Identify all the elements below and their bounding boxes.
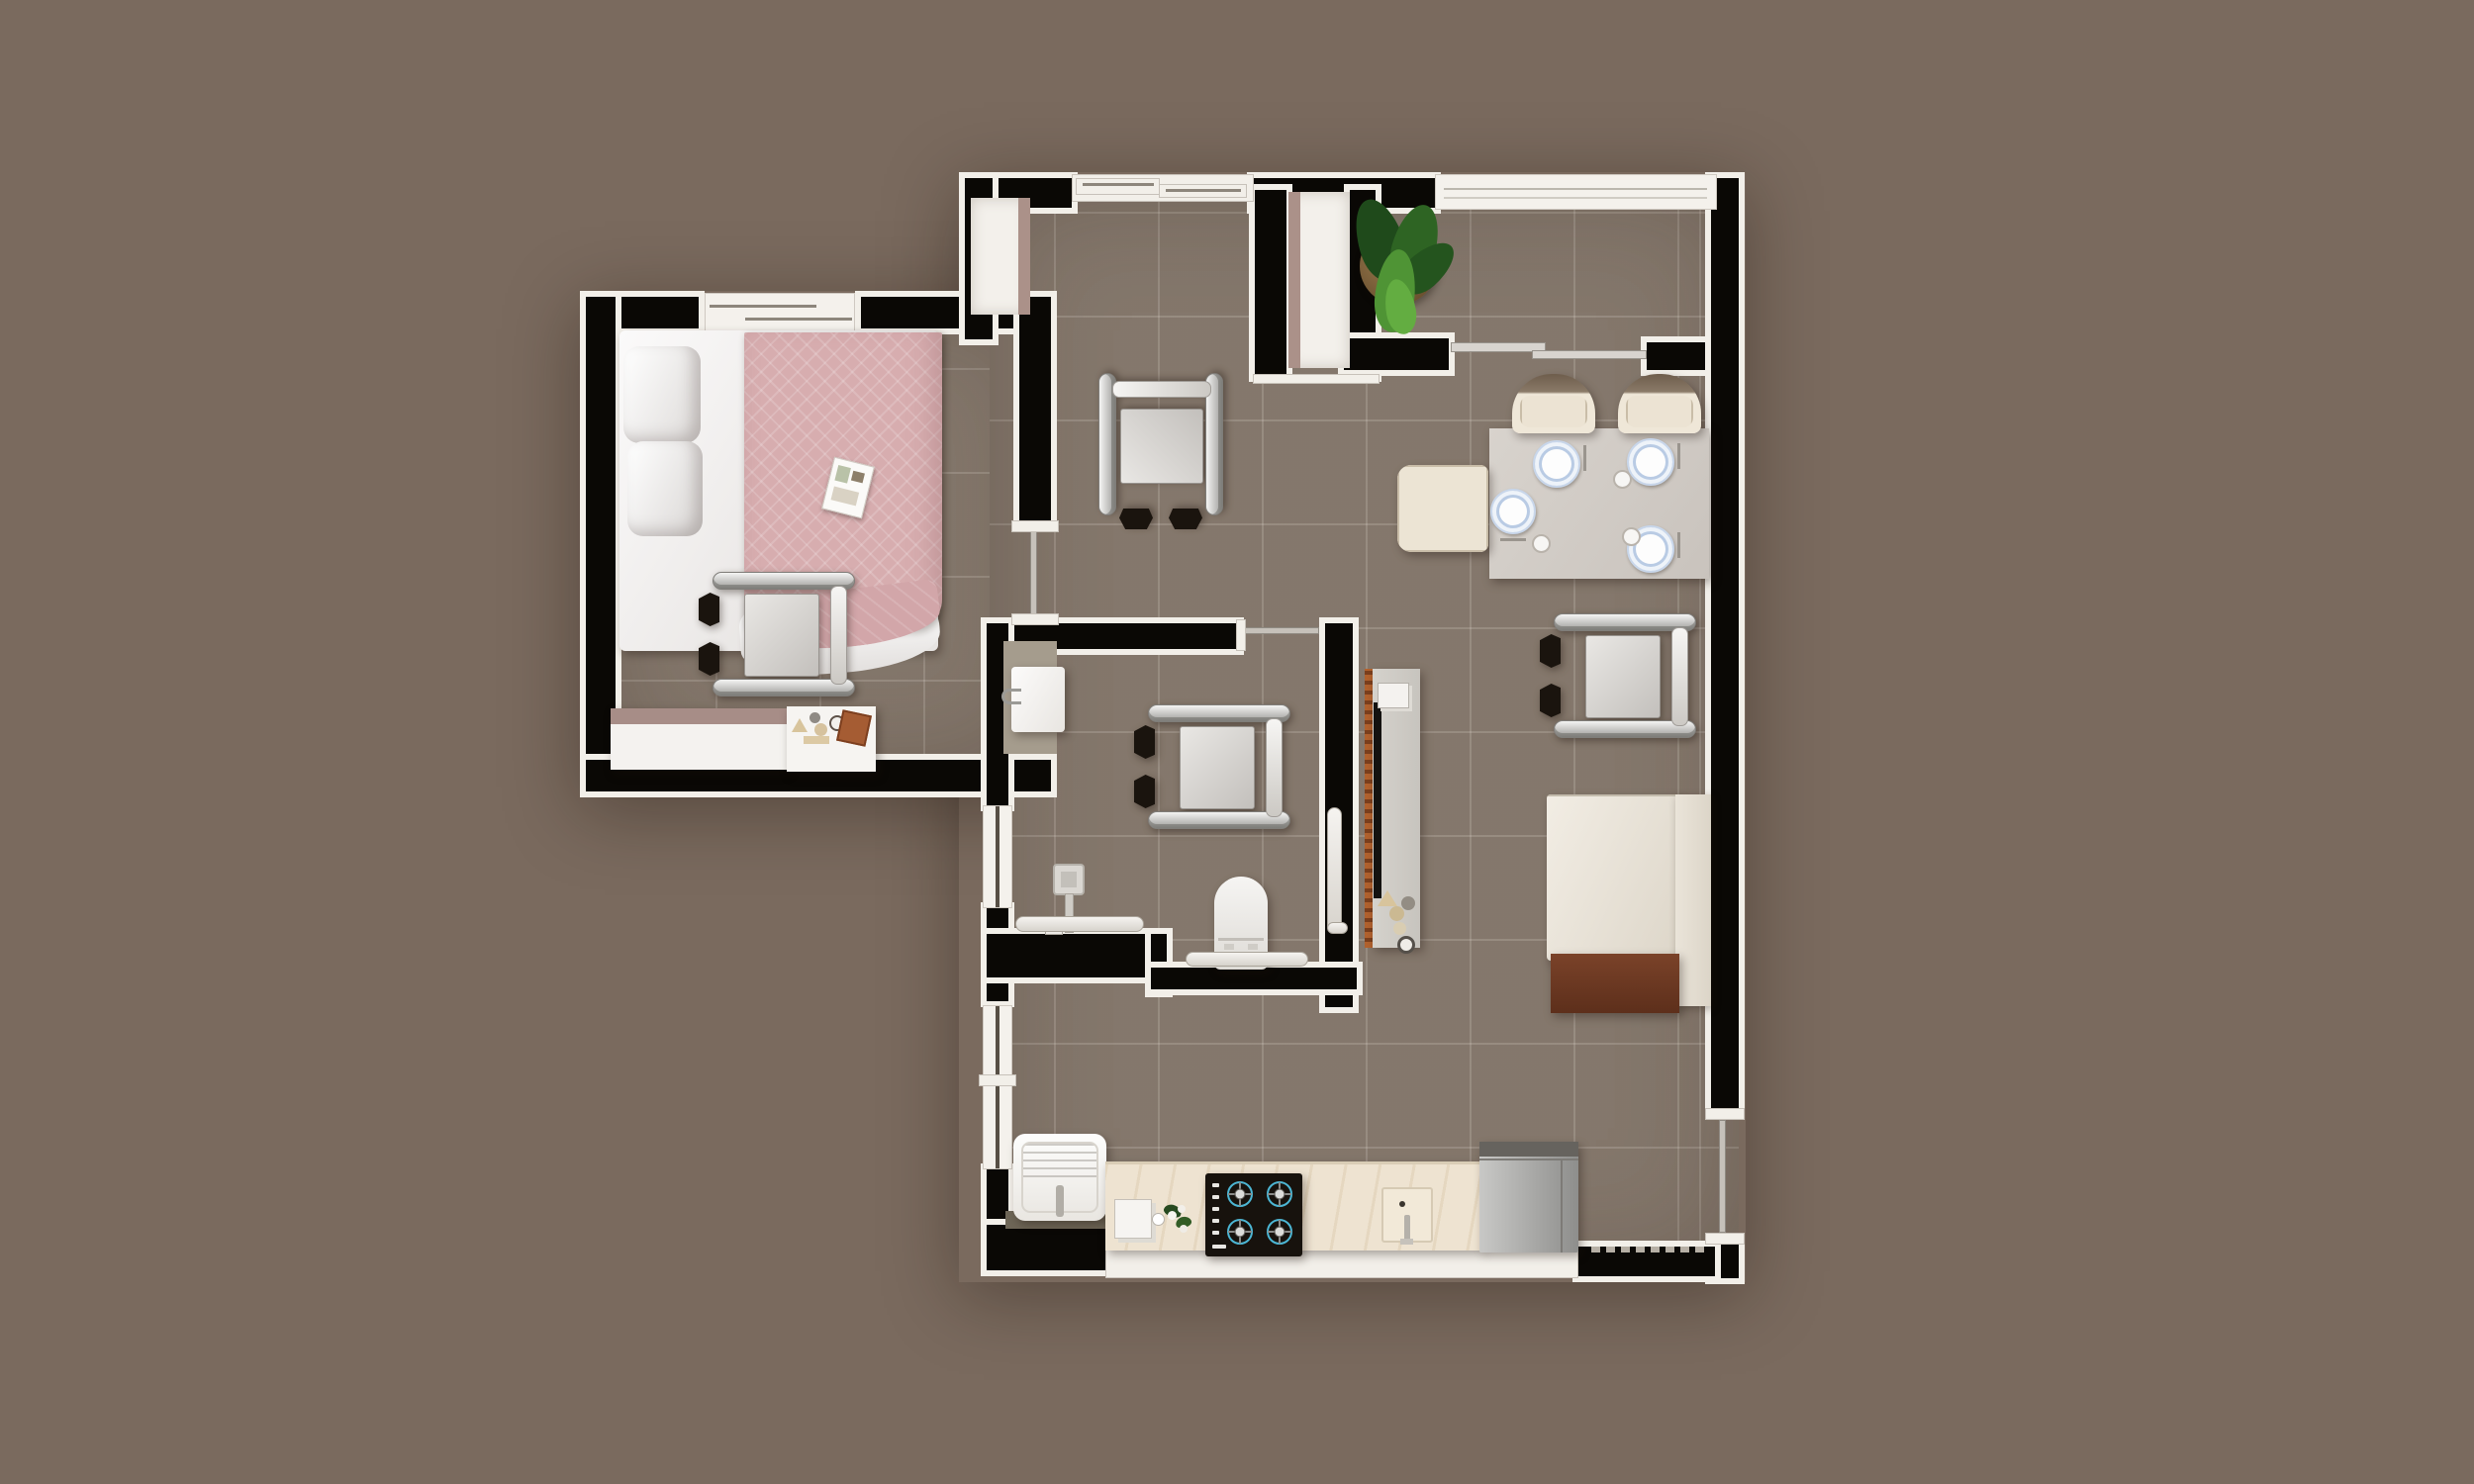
- daybed-cushion: [1547, 794, 1679, 961]
- armchair: [1397, 465, 1488, 552]
- bed-pillow: [627, 441, 703, 536]
- vent-tick: [1665, 1247, 1674, 1252]
- bedroom-sliding-door: [1030, 526, 1037, 619]
- decor-cylinder: [1401, 896, 1415, 910]
- place-setting-plate: [1533, 440, 1580, 488]
- flower-blossom: [1178, 1205, 1186, 1213]
- decor-cylinder: [809, 712, 820, 723]
- toilet-grab-bar: [1186, 952, 1308, 967]
- refrigerator-top: [1479, 1142, 1578, 1157]
- shower-window: [983, 805, 1012, 908]
- cooktop-label: [1212, 1245, 1226, 1249]
- cup: [1532, 534, 1551, 553]
- bed-pillow: [623, 346, 701, 443]
- place-setting-plate: [1490, 489, 1536, 534]
- cooktop-knob-icon: [1212, 1219, 1219, 1223]
- balcony-door-jamb-bottom: [1705, 1233, 1745, 1245]
- bedside-table: [787, 706, 876, 772]
- decor-bar: [804, 736, 829, 744]
- cutlery-icon: [1583, 445, 1586, 471]
- entry-door-panel-2: [1159, 184, 1247, 198]
- daybed-side-panel: [1675, 794, 1711, 1006]
- dresser-mauve-top: [611, 708, 787, 724]
- faucet-icon: [1001, 689, 1021, 704]
- bathroom-door-jamb: [1236, 619, 1246, 651]
- dining-slider-rail-2: [1532, 350, 1647, 359]
- vent-tick: [1636, 1247, 1645, 1252]
- closet-niche-right-accent: [1288, 192, 1300, 368]
- cup: [1613, 470, 1632, 489]
- niche-right-wall-a: [1249, 184, 1292, 382]
- toilet-hinge: [1248, 944, 1258, 950]
- cooktop-knob-icon: [1212, 1195, 1219, 1199]
- balcony-door-jamb-top: [1705, 1108, 1745, 1120]
- chair-cushion: [1520, 396, 1587, 427]
- magazine-photo: [834, 465, 850, 484]
- cooktop-knob-icon: [1212, 1183, 1219, 1187]
- vertical-grab-bar: [1327, 807, 1342, 934]
- speaker-box: [1378, 683, 1409, 708]
- vent-tick: [1680, 1247, 1689, 1252]
- chair-cushion: [1626, 396, 1693, 427]
- magazine-photo: [831, 487, 860, 507]
- cutlery-icon: [1500, 538, 1526, 541]
- decor-ring: [1397, 936, 1415, 954]
- cup: [1152, 1213, 1165, 1226]
- decor-book: [836, 709, 872, 747]
- tv-screen: [1374, 702, 1381, 898]
- decor-cylinder: [1393, 922, 1406, 935]
- niche-bottom-cap: [1253, 374, 1380, 384]
- wheelchair-bedroom: [699, 572, 857, 696]
- vent-tick: [1606, 1247, 1615, 1252]
- refrigerator-seam: [1479, 1159, 1578, 1160]
- gas-cooktop: [1205, 1173, 1302, 1256]
- bedroom-window: [705, 293, 855, 332]
- flower-blossom: [1168, 1211, 1177, 1220]
- decor-cylinder: [1389, 906, 1404, 921]
- toilet-hinge: [1224, 944, 1234, 950]
- bedroom-door-jamb-bottom: [1011, 613, 1059, 625]
- cooktop-knob-icon: [1212, 1231, 1219, 1235]
- shower-head: [1053, 864, 1085, 895]
- sink-drain: [1399, 1201, 1405, 1207]
- bedroom-dresser: [611, 708, 787, 770]
- floor-plan-scene: [0, 0, 2474, 1484]
- cooktop-knob-icon: [1212, 1207, 1219, 1211]
- top-right-window-band: [1435, 174, 1717, 210]
- vent-tick: [1621, 1247, 1630, 1252]
- bedroom-right-wall: [1013, 291, 1057, 530]
- laundry-faucet: [1056, 1185, 1064, 1217]
- kitchen-window: [983, 1005, 1012, 1169]
- daybed-footboard: [1551, 954, 1679, 1013]
- refrigerator-door-split: [1561, 1159, 1563, 1252]
- cutlery-icon: [1677, 443, 1680, 469]
- flower-blossom: [1180, 1225, 1188, 1233]
- divider-wall-a: [1338, 332, 1455, 376]
- vent-tick: [1651, 1247, 1660, 1252]
- right-wall-upper: [1705, 172, 1745, 1116]
- laundry-tub: [1013, 1134, 1106, 1221]
- decor-triangle: [792, 718, 808, 732]
- cutlery-icon: [1677, 532, 1680, 558]
- decor-cylinder: [814, 723, 827, 736]
- vent-tick: [1695, 1247, 1704, 1252]
- shower-grab-bar: [1015, 916, 1144, 932]
- bedroom-door-jamb-top: [1011, 520, 1059, 532]
- vertical-grab-bar-bend: [1327, 922, 1348, 934]
- magazine-photo: [851, 471, 865, 484]
- kitchen-sink: [1381, 1187, 1433, 1243]
- coffee-maker: [1114, 1199, 1152, 1239]
- toilet-seat-hinge: [1218, 938, 1264, 941]
- refrigerator: [1479, 1142, 1578, 1252]
- bathroom-sliding-door: [1244, 627, 1319, 634]
- balcony-sliding-door: [1719, 1120, 1726, 1233]
- wheelchair-bathroom: [1134, 704, 1292, 829]
- vent-tick: [1591, 1247, 1600, 1252]
- closet-niche-left-accent: [1018, 198, 1030, 315]
- wheelchair-hallway: [1098, 371, 1223, 529]
- kitchen-window-mullion: [979, 1074, 1016, 1086]
- place-setting-plate: [1627, 438, 1674, 486]
- wheelchair-living: [1540, 613, 1698, 738]
- bathroom-bottom-wall-left: [981, 928, 1159, 983]
- tv-slat-panel: [1365, 669, 1373, 948]
- shower-head-plate: [1061, 872, 1077, 887]
- sink-faucet-base: [1400, 1239, 1413, 1245]
- entry-door-panel-1: [1076, 178, 1160, 195]
- cup: [1622, 527, 1641, 546]
